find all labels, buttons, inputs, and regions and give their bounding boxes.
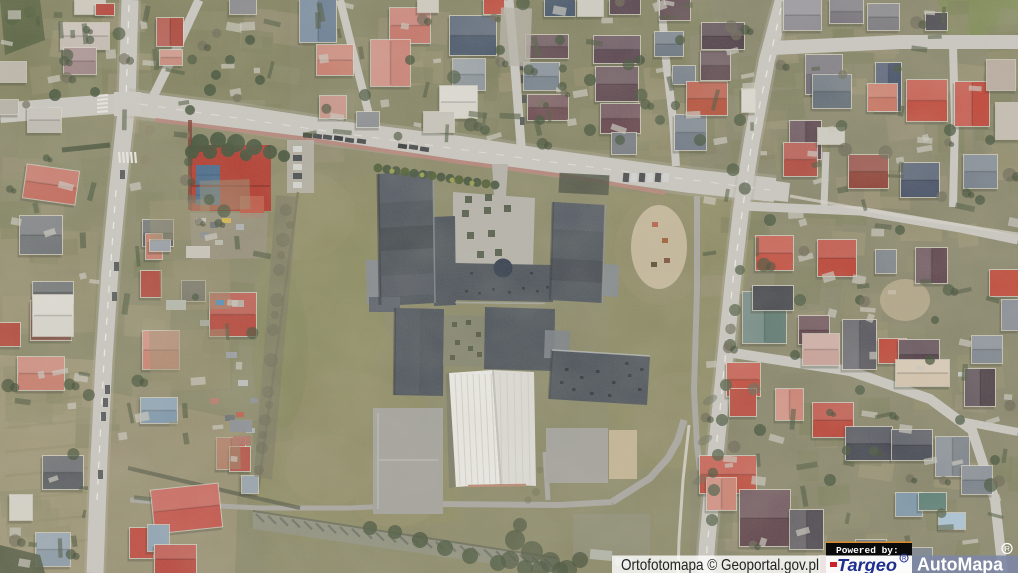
svg-text:Ortofotomapa © Geoportal.gov.p: Ortofotomapa © Geoportal.gov.pl xyxy=(621,557,819,573)
svg-text:R: R xyxy=(902,557,907,563)
svg-text:AutoMapa: AutoMapa xyxy=(917,554,1004,573)
svg-text:Targeo: Targeo xyxy=(837,555,897,573)
svg-text:R: R xyxy=(1005,546,1010,553)
